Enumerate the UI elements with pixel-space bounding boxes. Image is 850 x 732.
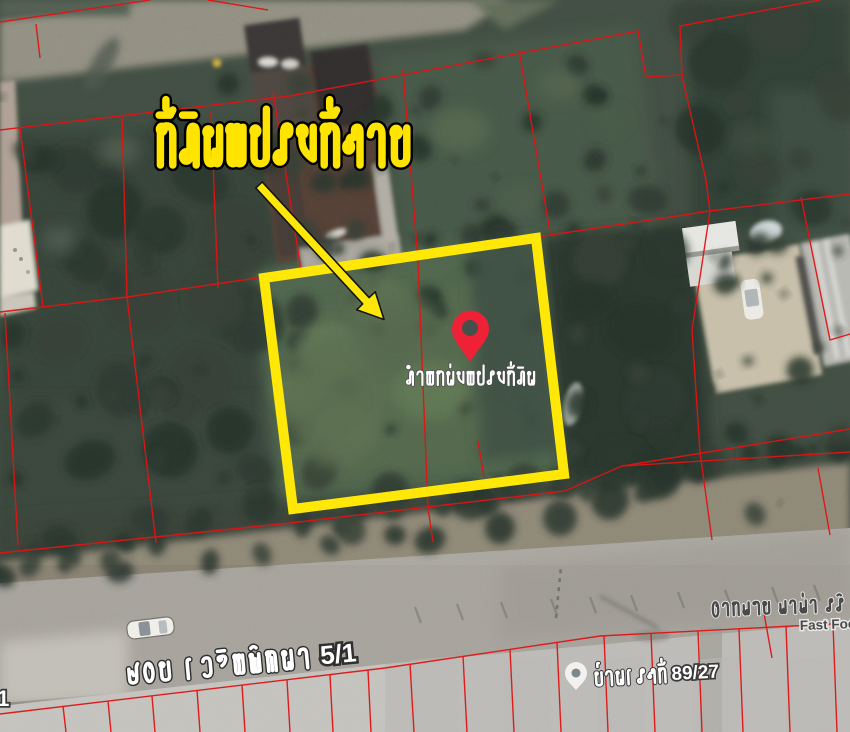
svg-text:/1: /1: [0, 686, 9, 711]
svg-text:Fast Food: Fast Food: [800, 616, 850, 633]
svg-text:89/27: 89/27: [671, 662, 720, 685]
svg-text:5/1: 5/1: [319, 637, 358, 670]
